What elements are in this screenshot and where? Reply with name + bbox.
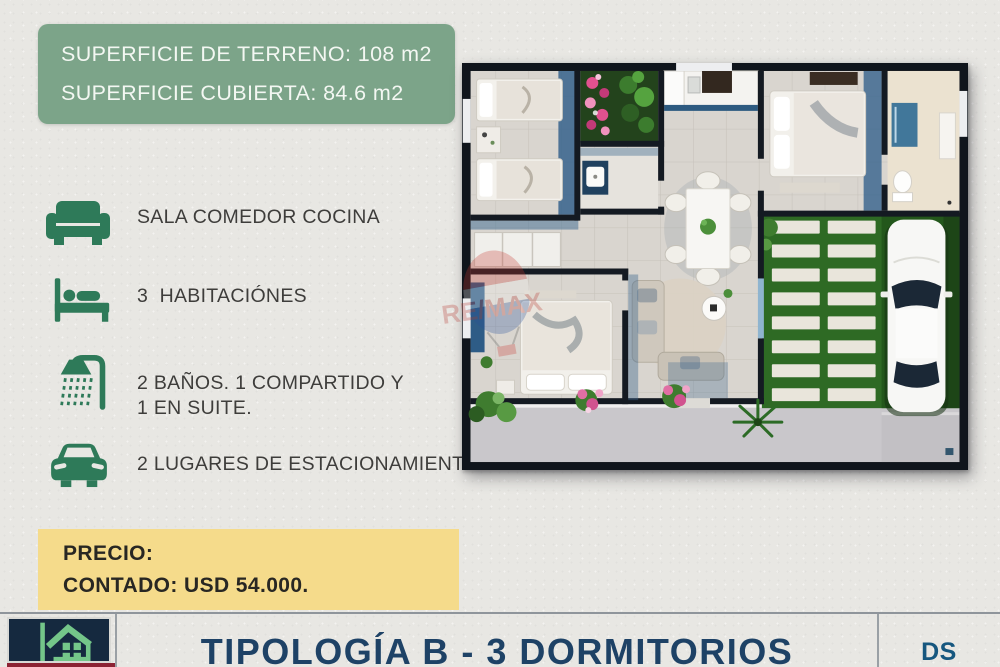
floor-plan-svg xyxy=(462,63,968,470)
shower-icon xyxy=(57,348,109,414)
parked-car xyxy=(881,220,953,417)
feature-parking-label: 2 LUGARES DE ESTACIONAMIENTO xyxy=(137,453,480,476)
feature-bedrooms-label: 3 HABITACIÓNES xyxy=(137,285,307,308)
price-value: CONTADO: USD 54.000. xyxy=(63,574,459,598)
surface-info-box: SUPERFICIE DE TERRENO: 108 m2 SUPERFICIE… xyxy=(38,24,455,124)
bed-icon xyxy=(53,276,111,324)
terrain-surface-text: SUPERFICIE DE TERRENO: 108 m2 xyxy=(61,42,455,67)
street-walkway xyxy=(471,404,960,462)
agency-logo xyxy=(7,617,111,663)
covered-surface-text: SUPERFICIE CUBIERTA: 84.6 m2 xyxy=(61,81,455,106)
kitchen xyxy=(664,71,758,111)
house-logo-icon xyxy=(9,619,109,661)
bathroom-shared xyxy=(580,148,658,211)
couch-icon xyxy=(45,197,111,249)
brand-initials: DS xyxy=(878,638,1000,667)
feature-bathrooms-label-line1: 2 BAÑOS. 1 COMPARTIDO Y xyxy=(137,372,404,395)
car-icon xyxy=(48,438,110,488)
price-label: PRECIO: xyxy=(63,542,459,566)
real-estate-flyer: SUPERFICIE DE TERRENO: 108 m2 SUPERFICIE… xyxy=(0,0,1000,667)
footer-vertical-divider-left xyxy=(115,614,117,667)
bedroom-suite xyxy=(770,71,882,211)
feature-living-label: SALA COMEDOR COCINA xyxy=(137,206,380,229)
floor-plan-image xyxy=(462,63,968,470)
feature-bathrooms-label-line2: 1 EN SUITE. xyxy=(137,397,252,420)
logo-red-strip xyxy=(7,663,115,667)
footer-divider-line xyxy=(0,612,1000,614)
price-box: PRECIO: CONTADO: USD 54.000. xyxy=(38,529,459,610)
flower-bed xyxy=(580,71,658,143)
bathroom-ensuite xyxy=(888,71,960,211)
typology-title: TIPOLOGÍA B - 3 DORMITORIOS xyxy=(118,631,876,667)
